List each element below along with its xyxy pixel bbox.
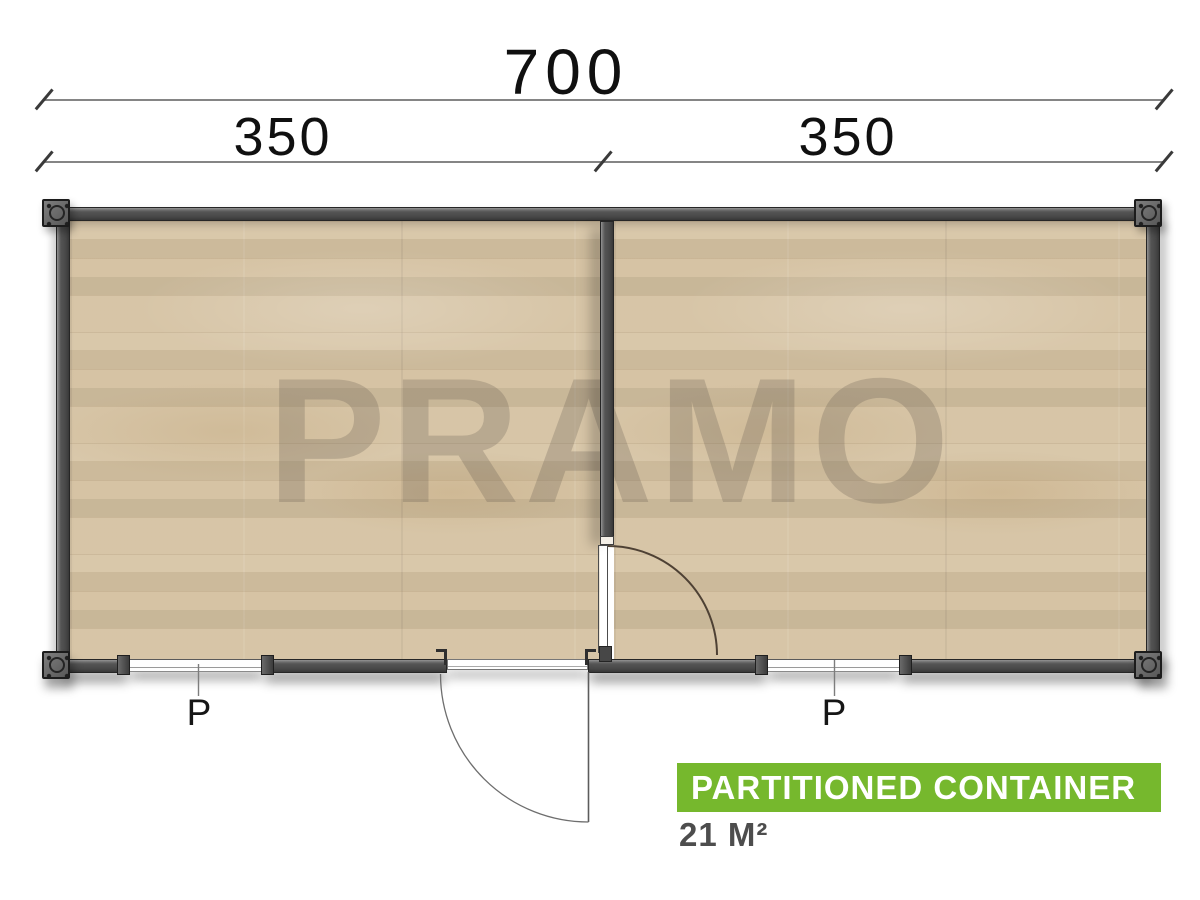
top-wall: [64, 207, 1152, 221]
left-wall: [56, 213, 70, 667]
corner-post-top-right: [1134, 199, 1162, 227]
door-stop: [585, 649, 588, 665]
corner-post-top-left: [42, 199, 70, 227]
bottom-wall-segment: [588, 659, 768, 673]
door-stop: [444, 649, 447, 665]
window-label-left: P: [169, 694, 229, 731]
corner-post-bottom-left: [42, 651, 70, 679]
window-jamb: [261, 655, 274, 675]
right-wall: [1146, 213, 1160, 667]
dimension-total-label: 700: [416, 40, 716, 104]
interior-door-leaf: [598, 545, 608, 653]
corner-post-bottom-right: [1134, 651, 1162, 679]
window-left: [130, 659, 263, 672]
partition-door-jamb: [600, 536, 614, 545]
door-stop: [587, 649, 596, 652]
product-title-banner: PARTITIONED CONTAINER: [677, 763, 1161, 812]
bottom-wall-segment: [263, 659, 447, 673]
dimension-right-segment-label: 350: [698, 110, 998, 164]
window-jamb: [899, 655, 912, 675]
exterior-door-swing-arc: [441, 674, 589, 822]
exterior-door-threshold: [447, 659, 588, 670]
floor-plan-page: 700 350 350 PRAMO: [0, 0, 1200, 900]
window-jamb: [755, 655, 768, 675]
area-label: 21 M²: [679, 818, 768, 851]
bottom-wall-segment: [900, 659, 1152, 673]
interior-door-hinge: [599, 646, 612, 662]
dimension-left-segment-label: 350: [133, 110, 433, 164]
window-jamb: [117, 655, 130, 675]
window-label-right: P: [804, 694, 864, 731]
partition-wall: [600, 221, 614, 538]
window-right: [768, 659, 900, 672]
